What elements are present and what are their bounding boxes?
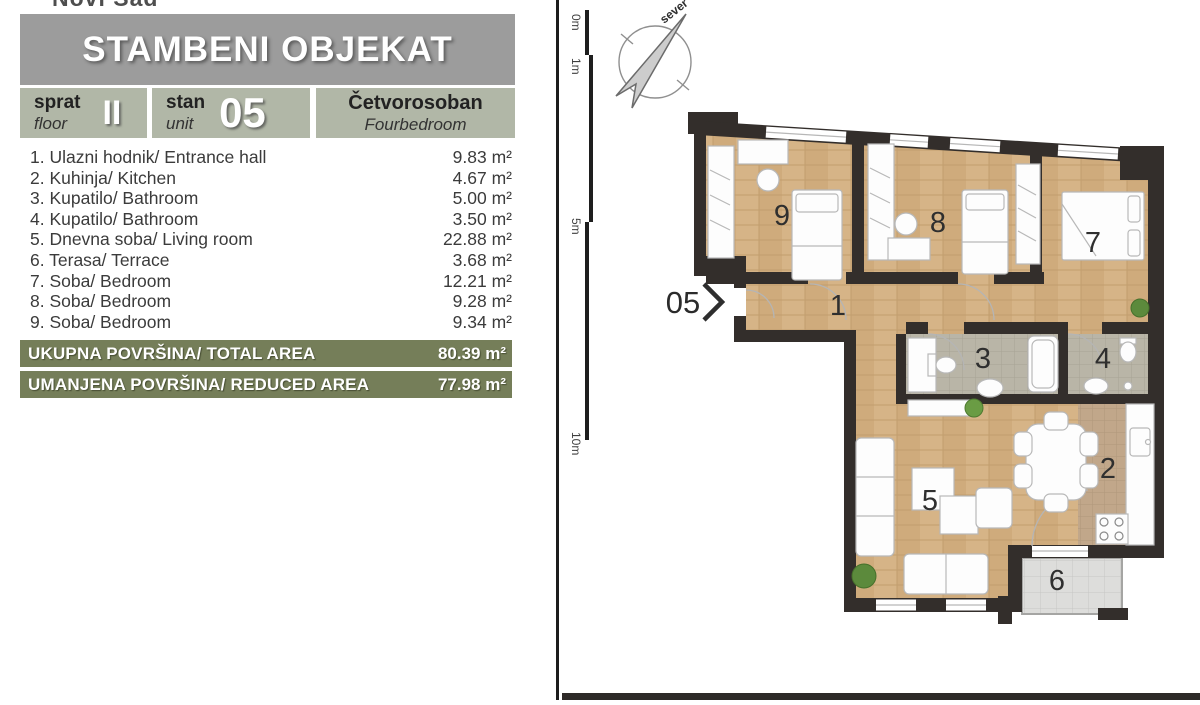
- bottom-plan-edge: [562, 693, 1200, 700]
- room-label: 5. Dnevna soba/ Living room: [20, 229, 253, 250]
- room-label: 6. Terasa/ Terrace: [20, 250, 169, 271]
- unit-box: stan unit 05: [152, 88, 310, 138]
- type-label-en: Fourbedroom: [364, 115, 466, 135]
- room-label: 3. Kupatilo/ Bathroom: [20, 188, 198, 209]
- room-row: 8. Soba/ Bedroom9.28 m²: [20, 291, 512, 312]
- room-area: 5.00 m²: [453, 188, 512, 209]
- chair: [757, 169, 779, 191]
- reduced-area-label: UMANJENA POVRŠINA/ REDUCED AREA: [20, 375, 369, 395]
- unit-label-sr: stan: [166, 92, 205, 114]
- type-label-sr: Četvorosoban: [348, 92, 482, 115]
- room-row: 6. Terasa/ Terrace3.68 m²: [20, 250, 512, 271]
- room-label: 9. Soba/ Bedroom: [20, 312, 171, 333]
- chair: [1044, 494, 1068, 512]
- label-hall-1: 1: [830, 290, 846, 322]
- scale-bar: 0m 1m 5m 10m: [569, 10, 593, 455]
- sink: [977, 379, 1003, 397]
- room-list: 1. Ulazni hodnik/ Entrance hall9.83 m² 2…: [20, 147, 512, 332]
- room-area: 9.28 m²: [453, 291, 512, 312]
- toilet: [928, 354, 936, 376]
- chair: [1044, 412, 1068, 430]
- armchair: [976, 488, 1012, 528]
- compass: sever: [616, 0, 691, 108]
- chair: [1080, 464, 1098, 488]
- unit-value: 05: [219, 89, 266, 137]
- room-row: 2. Kuhinja/ Kitchen4.67 m²: [20, 168, 512, 189]
- room-area: 4.67 m²: [453, 168, 512, 189]
- plant-icon: [1131, 299, 1149, 317]
- floor-label-sr: sprat: [34, 92, 80, 114]
- room-label: 2. Kuhinja/ Kitchen: [20, 168, 176, 189]
- kitchen-counter: [1126, 404, 1154, 545]
- room-area: 12.21 m²: [443, 271, 512, 292]
- plant-icon: [852, 564, 876, 588]
- chair: [1014, 432, 1032, 456]
- sofa: [856, 438, 894, 556]
- floor-label-en: floor: [34, 114, 80, 134]
- chair: [1014, 464, 1032, 488]
- floor-value: II: [102, 94, 121, 133]
- room-row: 7. Soba/ Bedroom12.21 m²: [20, 271, 512, 292]
- room-row: 3. Kupatilo/ Bathroom5.00 m²: [20, 188, 512, 209]
- scale-1m: 1m: [569, 58, 583, 75]
- page-title: STAMBENI OBJEKAT: [82, 30, 453, 70]
- dining-table: [1026, 424, 1086, 500]
- room-label: 1. Ulazni hodnik/ Entrance hall: [20, 147, 266, 168]
- reduced-area-bar: UMANJENA POVRŠINA/ REDUCED AREA 77.98 m²: [20, 371, 512, 398]
- label-living-5: 5: [922, 485, 938, 517]
- compass-north-label: sever: [657, 0, 691, 26]
- type-box: Četvorosoban Fourbedroom: [316, 88, 515, 138]
- scale-10m: 10m: [569, 432, 583, 455]
- total-area-value: 80.39 m²: [438, 344, 512, 364]
- label-bath-4: 4: [1095, 343, 1111, 375]
- entrance-unit-number: 05: [666, 285, 700, 320]
- room-label: 4. Kupatilo/ Bathroom: [20, 209, 198, 230]
- panel-divider: [556, 0, 559, 700]
- terrace-floor: [1022, 558, 1122, 614]
- desk: [738, 140, 788, 164]
- floorplan-panel: 0m 1m 5m 10m sever: [555, 0, 1200, 700]
- coffee-table: [940, 496, 978, 534]
- label-terrace-6: 6: [1049, 565, 1065, 597]
- label-bath-3: 3: [975, 343, 991, 375]
- room-row: 9. Soba/ Bedroom9.34 m²: [20, 312, 512, 333]
- label-bedroom-9: 9: [774, 200, 790, 232]
- totals: UKUPNA POVRŠINA/ TOTAL AREA 80.39 m² UMA…: [20, 340, 512, 402]
- floorplan-svg: 0m 1m 5m 10m sever: [555, 0, 1200, 700]
- scale-0m: 0m: [569, 14, 583, 31]
- stove: [1096, 514, 1128, 544]
- unit-label-en: unit: [166, 114, 205, 134]
- reduced-area-value: 77.98 m²: [438, 375, 512, 395]
- chair: [1080, 432, 1098, 456]
- corridor-floor: [856, 334, 896, 404]
- wardrobe: [708, 146, 734, 258]
- total-area-label: UKUPNA POVRŠINA/ TOTAL AREA: [20, 344, 316, 364]
- room-area: 22.88 m²: [443, 229, 512, 250]
- info-row: sprat floor II stan unit 05 Četvorosoban…: [20, 88, 515, 138]
- plant-icon: [965, 399, 983, 417]
- room-row: 4. Kupatilo/ Bathroom3.50 m²: [20, 209, 512, 230]
- label-kitchen-2: 2: [1100, 453, 1116, 485]
- console-table: [908, 400, 972, 416]
- room-label: 7. Soba/ Bedroom: [20, 271, 171, 292]
- label-bedroom-8: 8: [930, 207, 946, 239]
- chair: [895, 213, 917, 235]
- sink: [1084, 378, 1108, 394]
- title-bar: STAMBENI OBJEKAT: [20, 14, 515, 85]
- clipped-top-text: Novi Sad: [52, 0, 158, 11]
- legend-panel: Novi Sad STAMBENI OBJEKAT sprat floor II…: [0, 0, 556, 700]
- entrance-marker: 05: [666, 284, 722, 320]
- desk: [888, 238, 930, 260]
- total-area-bar: UKUPNA POVRŠINA/ TOTAL AREA 80.39 m²: [20, 340, 512, 367]
- room-row: 5. Dnevna soba/ Living room22.88 m²: [20, 229, 512, 250]
- floor-box: sprat floor II: [20, 88, 147, 138]
- room-area: 3.50 m²: [453, 209, 512, 230]
- room-area: 9.34 m²: [453, 312, 512, 333]
- room-area: 3.68 m²: [453, 250, 512, 271]
- room-row: 1. Ulazni hodnik/ Entrance hall9.83 m²: [20, 147, 512, 168]
- room-label: 8. Soba/ Bedroom: [20, 291, 171, 312]
- label-bedroom-7: 7: [1085, 227, 1101, 259]
- room-area: 9.83 m²: [453, 147, 512, 168]
- scale-5m: 5m: [569, 218, 583, 235]
- entrance-arrow-icon: [704, 284, 722, 320]
- compass-needle-icon: [616, 14, 686, 108]
